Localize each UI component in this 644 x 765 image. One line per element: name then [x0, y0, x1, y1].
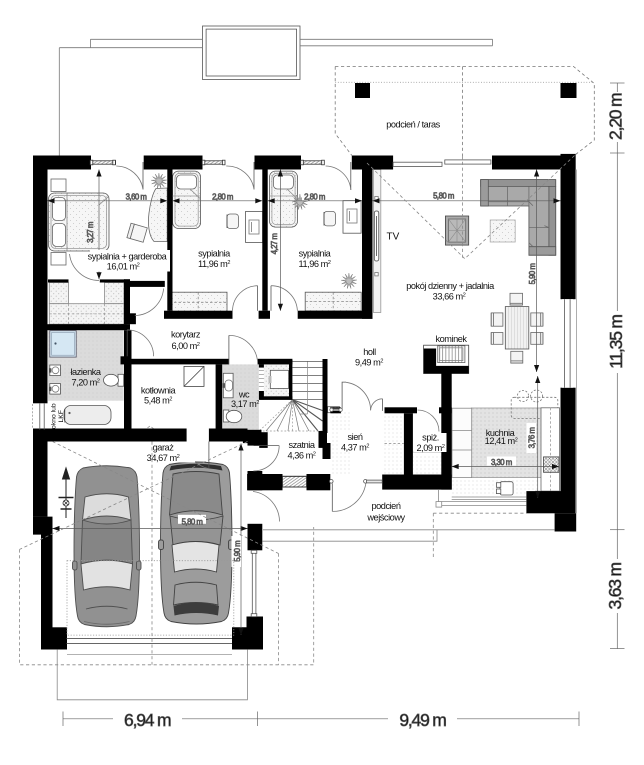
svg-text:spiż.: spiż. — [422, 432, 439, 442]
svg-text:5,48 m2: 5,48 m2 — [144, 396, 172, 406]
svg-text:11,96 m2: 11,96 m2 — [198, 259, 230, 269]
svg-text:3,27 m: 3,27 m — [86, 222, 95, 243]
svg-text:11,96 m2: 11,96 m2 — [299, 259, 331, 269]
svg-text:3,60 m: 3,60 m — [126, 192, 147, 201]
svg-text:korytarz: korytarz — [171, 330, 201, 340]
svg-text:sypialnia: sypialnia — [198, 249, 231, 259]
svg-text:12,41 m2: 12,41 m2 — [485, 436, 518, 446]
svg-text:sypialnia + garderoba: sypialnia + garderoba — [88, 252, 168, 262]
svg-text:2,20 m: 2,20 m — [606, 93, 626, 140]
svg-text:9,49 m: 9,49 m — [399, 710, 446, 730]
svg-text:szatnia: szatnia — [289, 440, 316, 450]
svg-text:sypialnia: sypialnia — [299, 249, 332, 259]
svg-text:garaż: garaż — [153, 442, 175, 452]
svg-text:5,80 m: 5,80 m — [433, 192, 454, 201]
svg-text:holl: holl — [363, 347, 376, 357]
svg-text:wejściowy: wejściowy — [366, 513, 405, 523]
svg-text:łazienka: łazienka — [70, 367, 101, 377]
svg-text:2,80 m: 2,80 m — [212, 192, 233, 201]
svg-text:6,00 m2: 6,00 m2 — [172, 341, 200, 351]
svg-text:2,09 m2: 2,09 m2 — [417, 443, 445, 453]
svg-text:okno lub: okno lub — [51, 403, 58, 429]
svg-text:5,90 m: 5,90 m — [233, 541, 242, 562]
svg-text:5,80 m: 5,80 m — [182, 517, 203, 526]
svg-text:3,76 m: 3,76 m — [528, 428, 537, 449]
svg-text:16,01 m2: 16,01 m2 — [107, 262, 140, 272]
svg-text:3,63 m: 3,63 m — [605, 563, 625, 610]
svg-text:podcień: podcień — [371, 501, 400, 511]
svg-text:kominek: kominek — [435, 334, 467, 344]
svg-text:wc: wc — [238, 390, 250, 400]
svg-text:3,17 m2: 3,17 m2 — [231, 399, 259, 409]
svg-text:4,37 m2: 4,37 m2 — [341, 442, 369, 452]
svg-text:LKF: LKF — [58, 410, 65, 422]
svg-text:3,30 m: 3,30 m — [491, 458, 512, 467]
svg-text:5,90 m: 5,90 m — [528, 264, 537, 285]
svg-text:TV: TV — [387, 231, 400, 242]
svg-text:kotłownia: kotłownia — [141, 386, 177, 396]
svg-text:6,94 m: 6,94 m — [124, 710, 171, 730]
svg-text:sień: sień — [347, 432, 362, 442]
svg-text:pokój dzienny + jadalnia: pokój dzienny + jadalnia — [406, 281, 495, 291]
svg-text:2,80 m: 2,80 m — [304, 192, 325, 201]
svg-text:7,20 m2: 7,20 m2 — [72, 378, 100, 388]
svg-text:33,66 m2: 33,66 m2 — [433, 292, 466, 302]
svg-text:podcień / taras: podcień / taras — [386, 120, 440, 130]
svg-text:4,36 m2: 4,36 m2 — [288, 451, 316, 461]
svg-text:4,27 m: 4,27 m — [270, 234, 279, 255]
svg-text:11,35 m: 11,35 m — [606, 315, 626, 369]
svg-text:9,49 m2: 9,49 m2 — [355, 358, 383, 368]
